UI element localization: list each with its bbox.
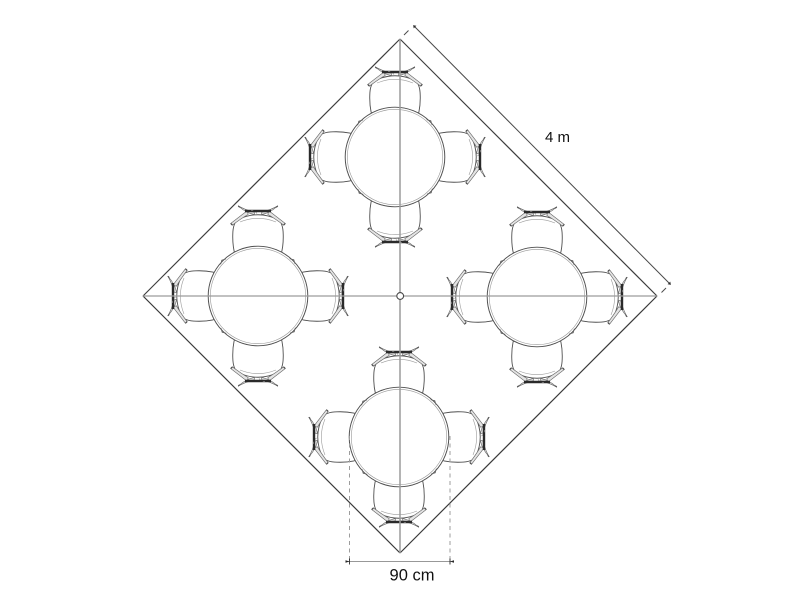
svg-text:4 m: 4 m	[545, 129, 570, 146]
svg-text:90 cm: 90 cm	[390, 567, 435, 585]
